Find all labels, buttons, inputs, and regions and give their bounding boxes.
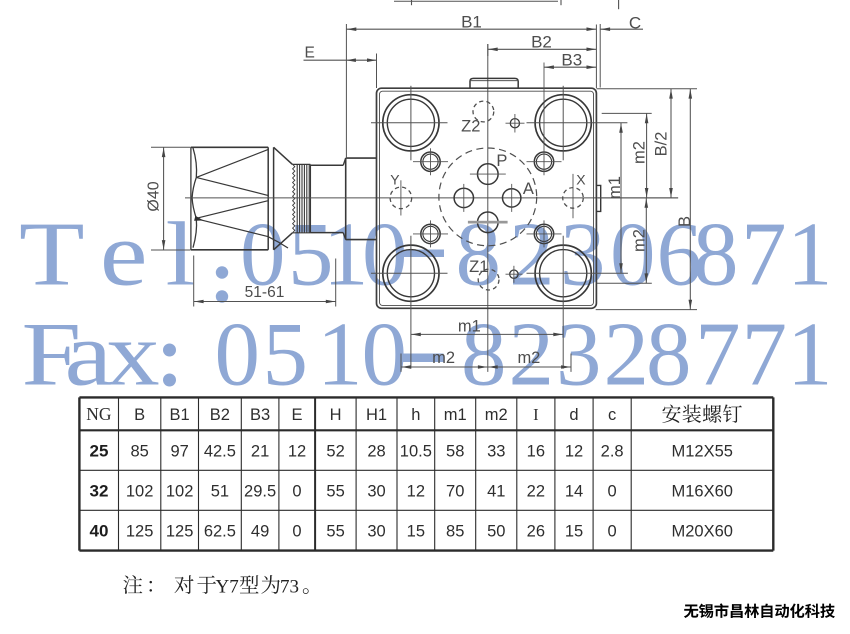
svg-text:M16X60: M16X60: [672, 482, 733, 500]
svg-text:15: 15: [565, 523, 583, 541]
svg-text:A: A: [523, 180, 534, 198]
svg-text:Fax: Fax: [21, 303, 159, 404]
svg-text:m2: m2: [432, 349, 455, 367]
svg-text:NG: NG: [86, 404, 112, 424]
svg-text:Z2: Z2: [461, 118, 480, 136]
svg-text:49: 49: [251, 523, 269, 541]
svg-text:X: X: [576, 172, 586, 188]
svg-text:B2: B2: [210, 406, 230, 424]
svg-text:12: 12: [288, 442, 306, 460]
svg-text:12: 12: [565, 442, 583, 460]
svg-text:15: 15: [407, 523, 425, 541]
svg-text:0: 0: [292, 482, 301, 500]
svg-text:Y: Y: [390, 171, 400, 187]
svg-text:m2: m2: [631, 141, 649, 164]
svg-text:82306871: 82306871: [456, 204, 833, 305]
svg-text:28: 28: [367, 442, 385, 460]
svg-text:0: 0: [608, 482, 617, 500]
svg-text:42.5: 42.5: [204, 442, 236, 460]
svg-text:25: 25: [89, 441, 108, 460]
svg-text:0510: 0510: [215, 304, 408, 405]
svg-text:14: 14: [565, 482, 583, 500]
svg-text:58: 58: [446, 442, 464, 460]
svg-text:29.5: 29.5: [244, 482, 276, 500]
svg-text:P: P: [496, 152, 507, 170]
svg-text:55: 55: [326, 523, 344, 541]
svg-text:85: 85: [130, 442, 148, 460]
svg-text:B1: B1: [170, 406, 190, 424]
svg-text:B2: B2: [531, 33, 552, 52]
svg-text:30: 30: [367, 482, 385, 500]
svg-text:B3: B3: [561, 51, 582, 70]
svg-text:51: 51: [211, 482, 229, 500]
svg-text:62.5: 62.5: [204, 523, 236, 541]
svg-text:h: h: [411, 406, 420, 424]
svg-text:Ø40: Ø40: [146, 181, 163, 211]
svg-text:30: 30: [367, 523, 385, 541]
svg-text:I: I: [533, 405, 539, 424]
svg-text:M20X60: M20X60: [672, 523, 733, 541]
svg-text:50: 50: [487, 523, 505, 541]
svg-text:0: 0: [292, 523, 301, 541]
svg-text:E: E: [291, 406, 302, 424]
svg-text:B: B: [676, 216, 694, 227]
svg-text:H1: H1: [366, 406, 387, 424]
svg-text:B3: B3: [250, 406, 270, 424]
svg-text:d: d: [569, 406, 578, 424]
svg-text:32: 32: [89, 481, 108, 500]
svg-text:0: 0: [608, 523, 617, 541]
svg-text:125: 125: [126, 523, 154, 541]
svg-text:52: 52: [326, 442, 344, 460]
svg-text:26: 26: [527, 523, 545, 541]
svg-text:12: 12: [407, 482, 425, 500]
svg-text:55: 55: [326, 482, 344, 500]
svg-text:E: E: [305, 45, 315, 62]
svg-text:m1: m1: [606, 176, 624, 199]
svg-text:10.5: 10.5: [400, 442, 432, 460]
svg-text:73: 73: [280, 576, 299, 597]
svg-text:B1: B1: [461, 13, 482, 32]
svg-text:16: 16: [527, 442, 545, 460]
svg-text:Tel: Tel: [19, 203, 195, 304]
svg-text:B/2: B/2: [653, 132, 671, 157]
svg-text:m2: m2: [630, 229, 648, 252]
svg-text:51-61: 51-61: [245, 284, 285, 301]
svg-text:m1: m1: [444, 406, 467, 424]
svg-text:C: C: [629, 14, 641, 33]
svg-text:Y7: Y7: [216, 576, 239, 597]
svg-text:Z1: Z1: [469, 258, 488, 276]
svg-text:B: B: [134, 406, 145, 424]
svg-text:97: 97: [170, 442, 188, 460]
svg-text:m2: m2: [485, 406, 508, 424]
svg-text:85: 85: [446, 523, 464, 541]
svg-text:40: 40: [89, 522, 108, 541]
svg-text:102: 102: [126, 482, 154, 500]
svg-text:m1: m1: [458, 317, 481, 335]
svg-text:70: 70: [446, 482, 464, 500]
svg-text:M12X55: M12X55: [672, 442, 733, 460]
svg-text:2.8: 2.8: [601, 442, 624, 460]
svg-text:102: 102: [166, 482, 194, 500]
svg-text:c: c: [608, 406, 616, 424]
svg-text:41: 41: [487, 482, 505, 500]
svg-text:H: H: [330, 406, 342, 424]
svg-text:m2: m2: [517, 349, 540, 367]
svg-text:21: 21: [251, 442, 269, 460]
svg-text:22: 22: [527, 482, 545, 500]
svg-text:125: 125: [166, 523, 194, 541]
svg-text:33: 33: [487, 442, 505, 460]
